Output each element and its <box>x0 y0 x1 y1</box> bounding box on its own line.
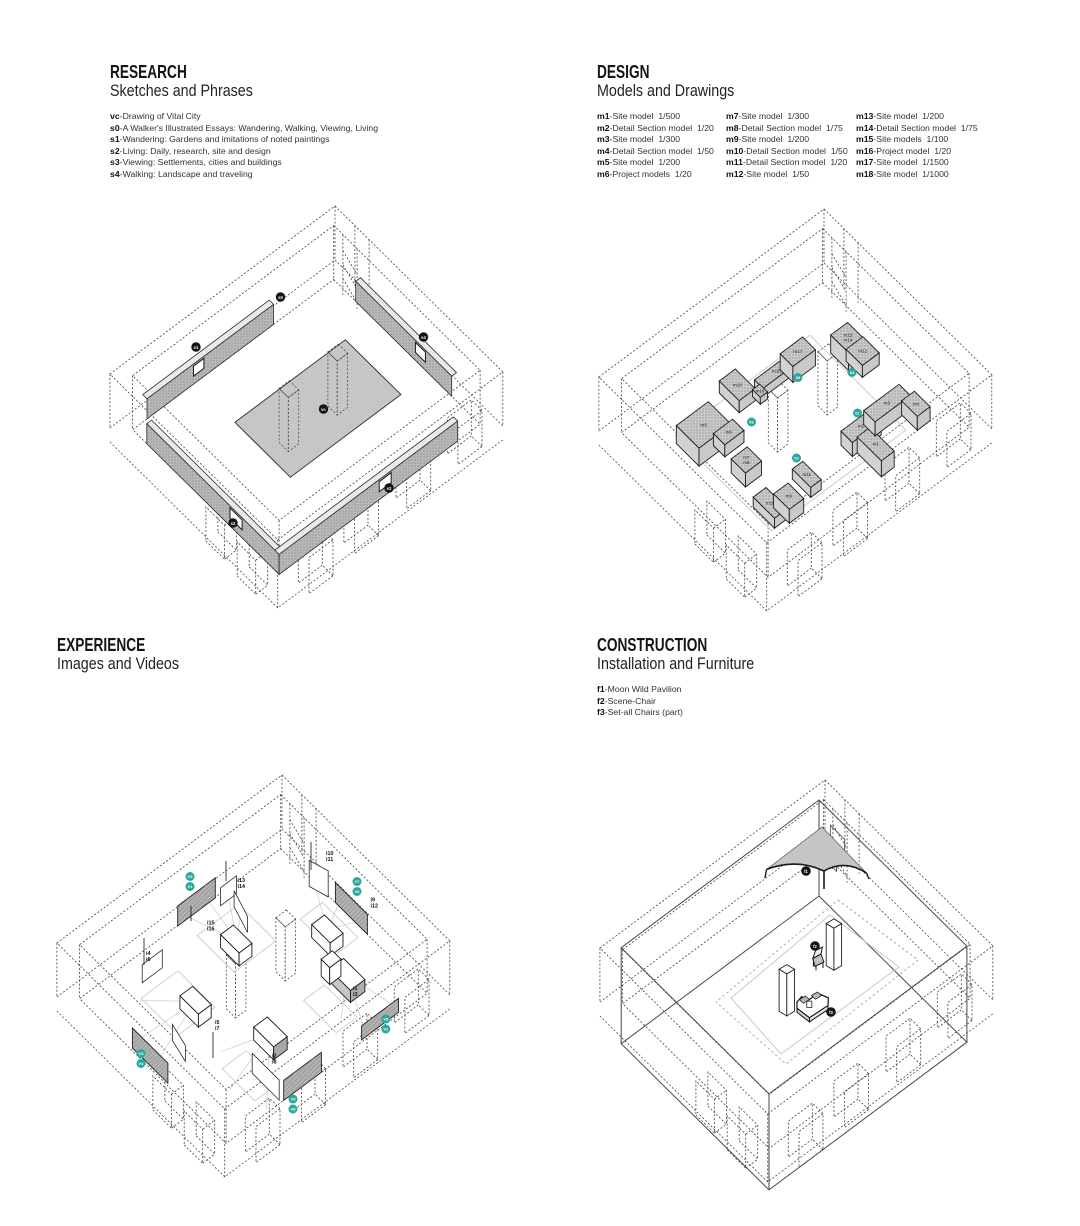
svg-text:i4: i4 <box>146 951 151 957</box>
svg-text:f2: f2 <box>813 944 817 949</box>
svg-text:i2: i2 <box>272 1054 277 1060</box>
svg-text:i13: i13 <box>238 878 246 884</box>
svg-text:02: 02 <box>794 456 799 461</box>
svg-text:m3: m3 <box>884 401 891 406</box>
svg-text:m4: m4 <box>913 401 920 406</box>
svg-text:05: 05 <box>796 375 801 380</box>
svg-text:V3: V3 <box>139 1051 145 1056</box>
svg-text:i16: i16 <box>207 927 215 933</box>
svg-text:f1: f1 <box>804 869 808 874</box>
svg-text:i6: i6 <box>146 957 151 963</box>
svg-text:s3: s3 <box>387 486 392 491</box>
svg-text:i14: i14 <box>238 884 246 890</box>
svg-text:i5: i5 <box>215 1020 220 1026</box>
svg-text:m16: m16 <box>756 388 765 393</box>
svg-text:V4: V4 <box>139 1061 145 1066</box>
svg-text:V3: V3 <box>188 874 194 879</box>
svg-text:vc: vc <box>321 407 326 412</box>
svg-text:m9: m9 <box>786 494 793 499</box>
svg-text:i15: i15 <box>207 921 215 927</box>
svg-text:i11: i11 <box>326 857 333 863</box>
svg-text:f3: f3 <box>829 1010 833 1015</box>
svg-text:V9: V9 <box>291 1097 297 1102</box>
svg-text:m1: m1 <box>873 442 880 447</box>
svg-text:i12: i12 <box>371 904 379 910</box>
svg-text:V2: V2 <box>383 1027 389 1032</box>
svg-text:i9: i9 <box>371 898 376 904</box>
svg-text:m6: m6 <box>726 430 733 435</box>
svg-text:V6: V6 <box>355 889 361 894</box>
svg-text:m8: m8 <box>743 460 750 465</box>
svg-text:s4: s4 <box>421 335 426 340</box>
svg-text:m5: m5 <box>701 422 708 427</box>
svg-text:i1: i1 <box>353 986 358 992</box>
svg-text:i3: i3 <box>353 992 358 998</box>
svg-text:04: 04 <box>850 370 855 375</box>
svg-text:V5: V5 <box>383 1017 389 1022</box>
svg-text:i8: i8 <box>272 1060 277 1066</box>
svg-text:m18: m18 <box>733 382 742 387</box>
svg-text:i10: i10 <box>326 851 334 857</box>
svg-text:01: 01 <box>855 411 860 416</box>
svg-text:m14: m14 <box>844 337 853 342</box>
svg-text:s2: s2 <box>231 521 236 526</box>
svg-text:i7: i7 <box>215 1026 220 1032</box>
svg-text:V1: V1 <box>188 884 194 889</box>
svg-text:m12: m12 <box>858 349 867 354</box>
svg-text:m11: m11 <box>802 472 811 477</box>
svg-text:03: 03 <box>749 420 754 425</box>
svg-text:s1: s1 <box>194 345 199 350</box>
svg-text:s0: s0 <box>278 295 283 300</box>
svg-text:V7: V7 <box>355 879 361 884</box>
svg-text:m17: m17 <box>793 349 802 354</box>
svg-text:V8: V8 <box>291 1107 297 1112</box>
